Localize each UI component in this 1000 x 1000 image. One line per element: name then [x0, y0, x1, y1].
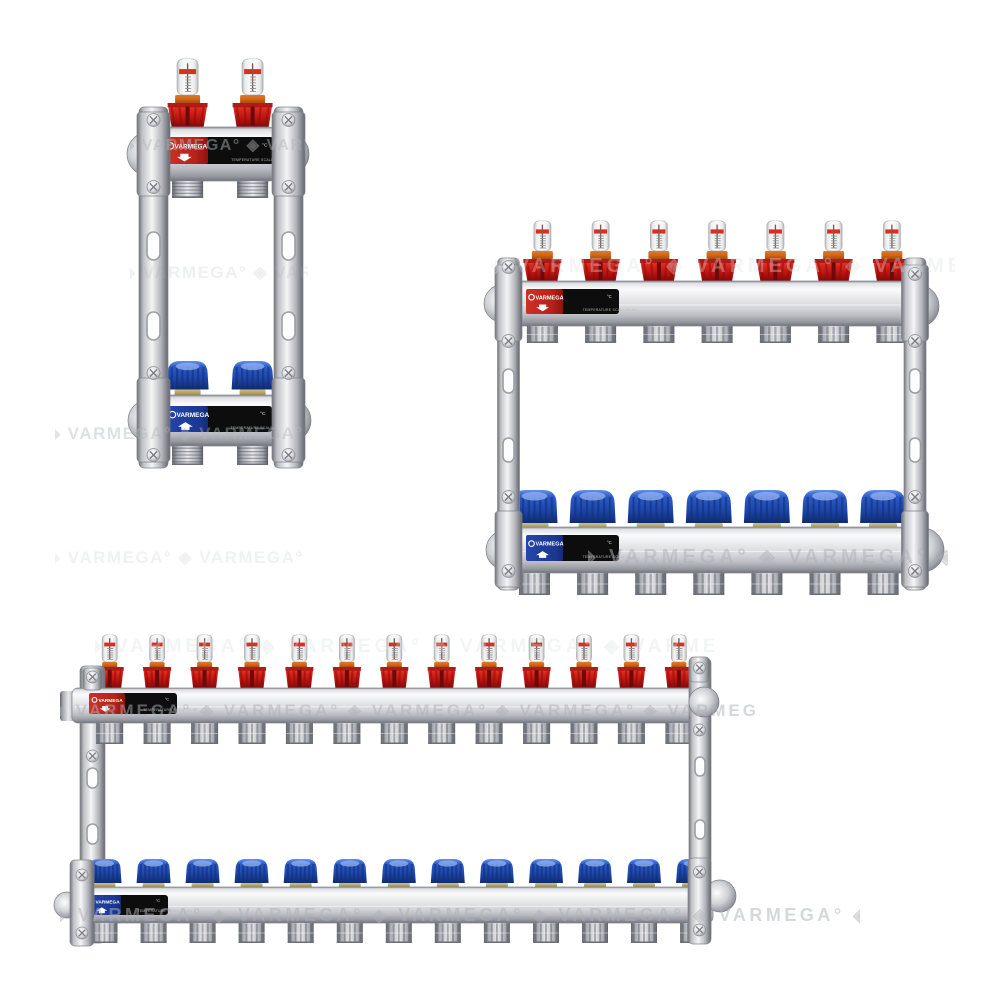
svg-text:°C: °C	[607, 540, 612, 545]
svg-text:°C: °C	[260, 411, 266, 417]
svg-text:VARMEGA: VARMEGA	[177, 412, 210, 419]
svg-text:VARMEGA: VARMEGA	[536, 542, 564, 548]
svg-text:◈ VARMEGA° ◈ VARMEGA° ◈ VARM: ◈ VARMEGA° ◈ VARMEGA° ◈ VARMEGA° ◈ VARME…	[46, 424, 1000, 443]
svg-text:TEMPERATURE SCALE 20-60: TEMPERATURE SCALE 20-60	[583, 308, 637, 312]
svg-text:◈ VARMEGA° ◈ VARMEGA° ◈ VARM: ◈ VARMEGA° ◈ VARMEGA° ◈ VARMEGA° ◈ VARME…	[51, 701, 1000, 720]
svg-text:°C: °C	[607, 294, 612, 299]
svg-text:°C: °C	[156, 899, 160, 903]
svg-text:◈ VARMEGA° ◈ VARMEGA° ◈ VARM: ◈ VARMEGA° ◈ VARMEGA° ◈ VARMEGA° ◈ VARME…	[86, 636, 1000, 657]
svg-text:◈ VARMEGA° ◈ VARMEGA° ◈ VARM: ◈ VARMEGA° ◈ VARMEGA° ◈ VARMEGA° ◈ VARME…	[51, 905, 1000, 925]
svg-text:VARMEGA: VARMEGA	[536, 295, 564, 301]
svg-text:◈ VARMEGA° ◈ VARMEGA° ◈ VARM: ◈ VARMEGA° ◈ VARMEGA° ◈ VARMEGA° ◈ VARME…	[579, 546, 1000, 568]
svg-text:◈ VARMEGA° ◈ VARMEGA° ◈ VARM: ◈ VARMEGA° ◈ VARMEGA° ◈ VARMEGA° ◈ VARME…	[121, 137, 1000, 154]
svg-text:◈ VARMEGA° ◈ VARMEGA° ◈ VARM: ◈ VARMEGA° ◈ VARMEGA° ◈ VARMEGA° ◈ VARME…	[486, 255, 1000, 277]
